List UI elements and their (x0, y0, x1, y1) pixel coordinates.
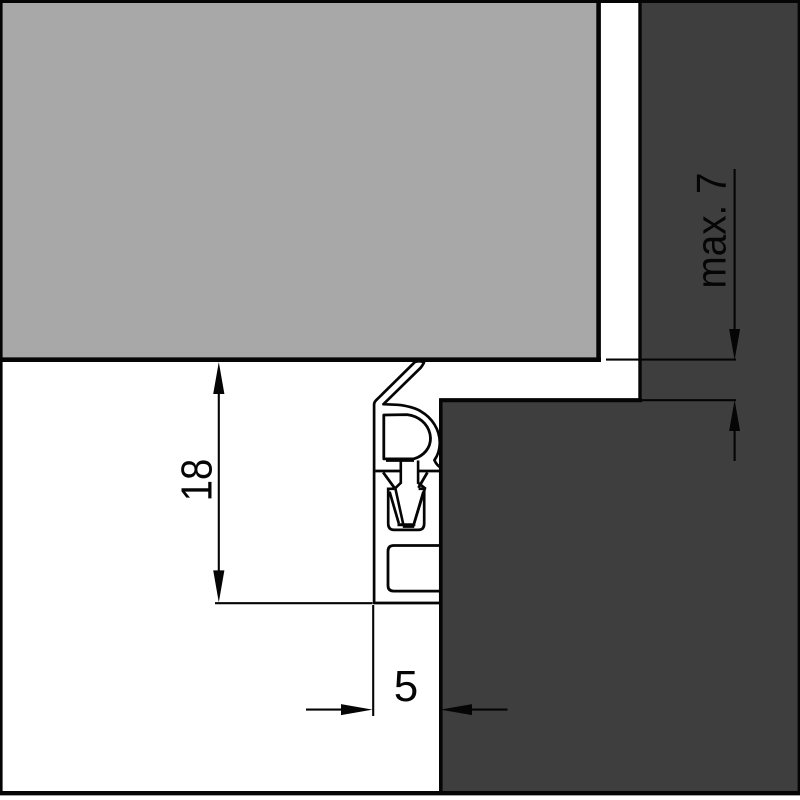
svg-text:max. 7: max. 7 (688, 173, 735, 289)
svg-text:5: 5 (394, 662, 418, 711)
svg-text:18: 18 (173, 459, 222, 502)
